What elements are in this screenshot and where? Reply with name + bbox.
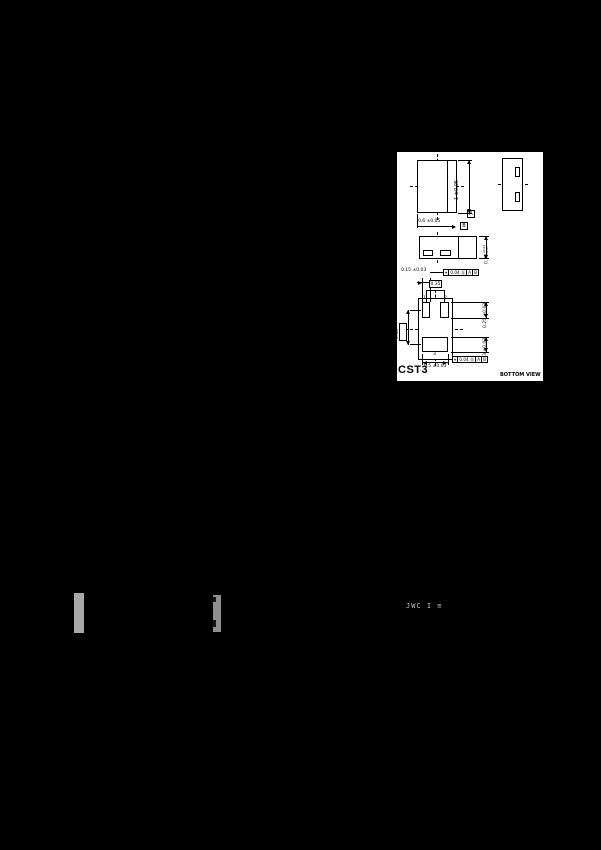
top-view-length-dim-line <box>469 160 470 214</box>
photo-terminal-mark <box>213 620 216 627</box>
fcf-tol-value: 0.04 <box>450 270 459 275</box>
fcf-datum-b: B <box>472 269 479 276</box>
row-pitch-dim: 0.65 <box>395 329 401 339</box>
pad12-length-dim: 0.25 ±0.03 <box>483 303 489 328</box>
pitch-dim-line <box>426 290 445 291</box>
top-view-width-dim: 0.6 ±0.05 <box>418 219 440 224</box>
height-value: 0.38 <box>485 254 490 264</box>
arrow-right-icon <box>418 281 422 285</box>
package-name-label: CST3 <box>398 364 428 376</box>
side-view-terminal-2 <box>515 192 520 202</box>
terminal-pitch-box: 0.35 <box>429 280 442 288</box>
extension-line <box>410 344 421 345</box>
extension-line <box>448 354 449 365</box>
extension-line <box>410 310 421 311</box>
fcf-tolerance: 0.04 Ⓢ <box>448 269 467 276</box>
extension-line <box>426 290 427 302</box>
arrow-up-icon <box>484 236 488 240</box>
arrow-right-icon <box>452 225 456 229</box>
fcf-datum-b: B <box>481 356 488 363</box>
bottom-view-pad-1 <box>422 302 430 318</box>
arrow-up-icon <box>406 310 410 314</box>
arrow-down-icon <box>406 341 410 345</box>
top-view-width-dim-line <box>417 226 455 227</box>
top-view-terminal-edge-line <box>447 160 448 213</box>
bottom-view-pad-2 <box>440 302 449 318</box>
pin-3-label: 3 <box>433 352 436 357</box>
position-tolerance-frame-bottom: ⌖0.04 ⓈAB <box>452 356 488 363</box>
arrow-up-icon <box>467 160 471 164</box>
fcf-modifier: Ⓢ <box>461 270 465 275</box>
bottom-view-label: BOTTOM VIEW <box>500 372 541 378</box>
fcf-leader-line <box>430 272 443 273</box>
top-view-body <box>417 160 457 213</box>
extension-line <box>444 290 445 302</box>
row-pitch-dim-line <box>408 310 409 345</box>
datum-b-box: B <box>460 222 468 230</box>
fcf-tol-value: 0.04 <box>459 357 468 362</box>
fcf-modifier: Ⓢ <box>470 357 474 362</box>
front-view-terminal-2 <box>440 250 451 256</box>
top-view-length-dim: 1 ±0.05 <box>454 180 460 200</box>
package-side-photo <box>213 595 221 632</box>
bottom-view-pad-3 <box>422 337 448 352</box>
height-tol-minus: -0.05 <box>486 245 489 254</box>
photo-terminal-mark <box>213 597 216 602</box>
side-view-terminal-1 <box>515 167 520 177</box>
position-tolerance-frame-top: ⌖0.04 ⓈAB <box>443 269 479 276</box>
terminal-width-dim: 0.15 ±0.03 <box>401 268 426 273</box>
datum-a-box: A <box>467 210 475 218</box>
package-outline-drawing: 1 ±0.05 0.6 ±0.05 B A 0.38+0.03-0.05 1 2… <box>397 152 543 381</box>
front-view-terminal-1 <box>423 250 433 256</box>
terminal-pitch-dim: 0.35 <box>430 282 440 287</box>
side-view-body <box>502 158 523 211</box>
fcf-tolerance: 0.04 Ⓢ <box>457 356 476 363</box>
device-marking-text: JWC I ≡ <box>406 602 443 611</box>
photo-strip-bar <box>74 593 84 633</box>
front-view-height-dim: 0.38+0.03-0.05 <box>483 245 489 264</box>
height-tolerance-stack: +0.03-0.05 <box>483 245 489 254</box>
front-view-edge-line <box>458 236 459 259</box>
